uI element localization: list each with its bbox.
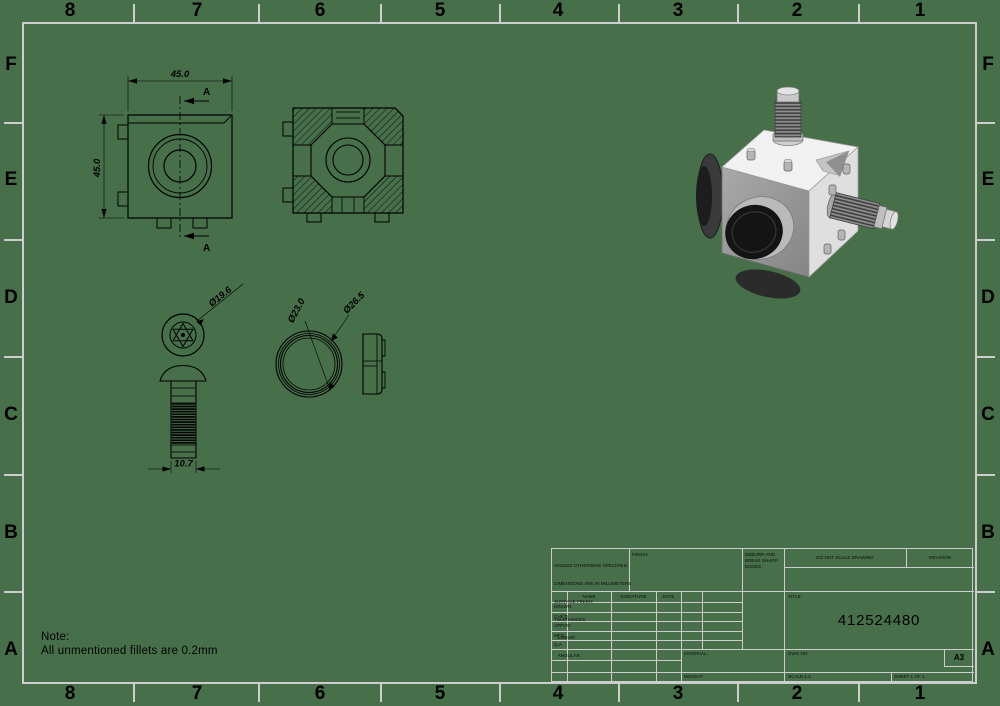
note-title: Note: [41,630,218,644]
svg-text:Ø26.5: Ø26.5 [341,290,368,317]
material-label: MATERIAL: [684,651,708,657]
top-stud [773,87,803,141]
ring-side-view [363,334,385,394]
row-qa: Q.A [554,642,562,648]
col-header-date: DATE [656,591,681,602]
finish-label: FINISH: [632,552,648,558]
col-header-name: NAME [567,591,611,602]
screw-side-view [160,366,206,459]
svg-text:A: A [203,243,210,254]
row-drawn: DRAWN [554,604,571,610]
revision-label: REVISION [906,549,974,567]
svg-text:45.0: 45.0 [92,158,103,178]
deburr-note: DEBURR AND BREAK SHARP EDGES [745,552,781,570]
svg-text:Ø19.6: Ø19.6 [207,284,235,309]
ring-detail [276,315,349,397]
dimension-arrows [101,78,232,218]
svg-text:10.7: 10.7 [174,459,193,470]
title-block: UNLESS OTHERWISE SPECIFIED: DIMENSIONS A… [551,548,973,682]
svg-text:45.0: 45.0 [170,69,190,80]
sheet-label: SHEET 1 OF 1 [894,674,925,680]
svg-text:A: A [203,87,210,98]
row-mfg: MFG [554,633,564,639]
dwg-no-label: DWG NO. [788,651,809,657]
row-chkd: CHK'D [554,614,568,620]
row-appvd: APPV'D [554,623,570,629]
sheet-note: Note: All unmentioned fillets are 0.2mm [41,630,218,658]
iso-render [696,87,901,304]
scale-label: SCALE:1:2 [788,674,811,680]
section-view [283,108,403,222]
note-body: All unmentioned fillets are 0.2mm [41,644,218,658]
svg-text:Ø23.0: Ø23.0 [286,296,308,325]
col-header-signature: SIGNATURE [611,591,656,602]
spec-block: UNLESS OTHERWISE SPECIFIED: DIMENSIONS A… [554,551,628,671]
drawing-number: 412524480 [784,591,974,649]
front-view [118,115,232,228]
weight-label: WEIGHT: [684,674,703,680]
do-not-scale-label: DO NOT SCALE DRAWING [784,549,906,567]
front-view-dimension-lines [99,76,232,218]
paper-size: A3 [944,649,974,666]
